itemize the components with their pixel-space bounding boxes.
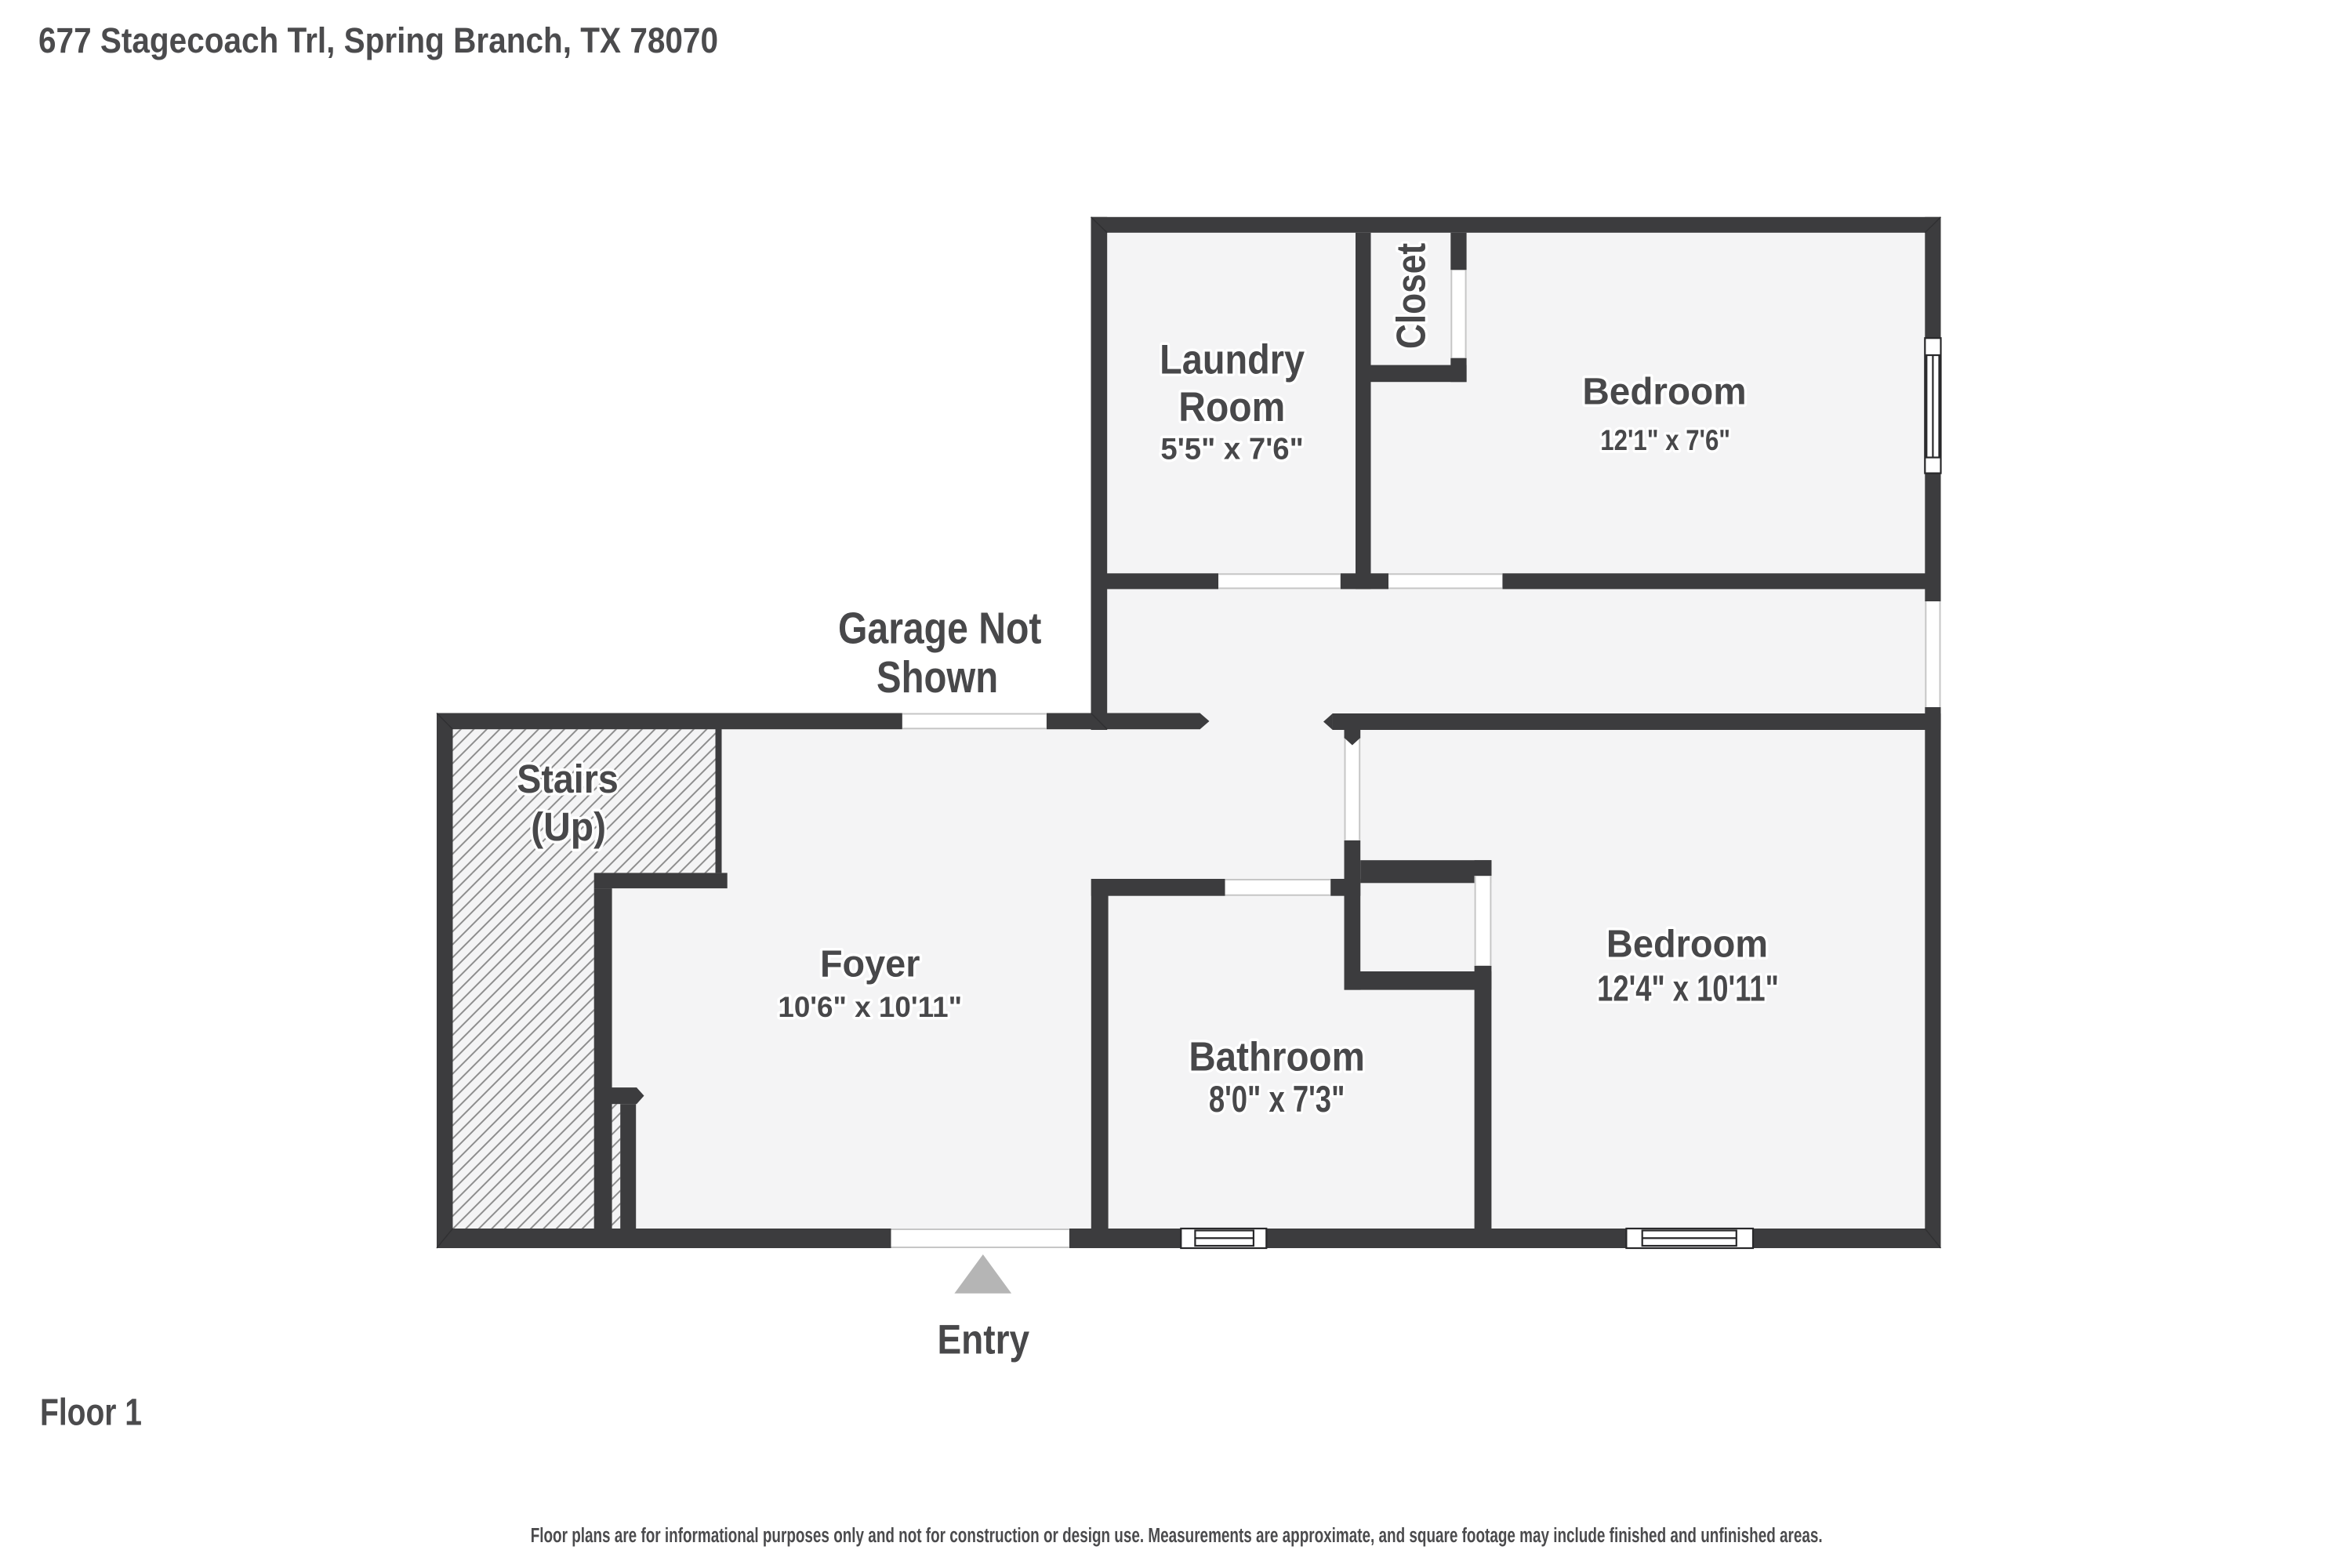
svg-text:677 Stagecoach Trl, Spring Bra: 677 Stagecoach Trl, Spring Branch, TX 78… bbox=[38, 20, 718, 60]
svg-text:Foyer: Foyer bbox=[820, 943, 920, 985]
svg-text:Entry: Entry bbox=[937, 1316, 1029, 1363]
svg-text:Garage Not: Garage Not bbox=[838, 603, 1041, 653]
svg-text:Laundry: Laundry bbox=[1160, 337, 1305, 383]
svg-text:10'6" x 10'11": 10'6" x 10'11" bbox=[778, 991, 962, 1023]
svg-text:Bedroom: Bedroom bbox=[1582, 371, 1746, 412]
svg-text:5'5" x 7'6": 5'5" x 7'6" bbox=[1160, 433, 1303, 466]
svg-text:Floor plans are for informatio: Floor plans are for informational purpos… bbox=[531, 1525, 1823, 1547]
svg-text:12'4" x 10'11": 12'4" x 10'11" bbox=[1597, 968, 1779, 1009]
svg-text:Stairs: Stairs bbox=[517, 757, 619, 801]
svg-text:Shown: Shown bbox=[877, 652, 998, 702]
svg-text:12'1" x 7'6": 12'1" x 7'6" bbox=[1600, 424, 1730, 456]
svg-text:Bathroom: Bathroom bbox=[1189, 1035, 1365, 1080]
svg-text:Bedroom: Bedroom bbox=[1606, 923, 1768, 965]
svg-text:Floor 1: Floor 1 bbox=[40, 1392, 142, 1434]
svg-text:Room: Room bbox=[1178, 384, 1285, 430]
svg-text:Closet: Closet bbox=[1389, 243, 1435, 349]
svg-text:8'0" x 7'3": 8'0" x 7'3" bbox=[1209, 1078, 1345, 1120]
svg-text:(Up): (Up) bbox=[531, 804, 606, 849]
